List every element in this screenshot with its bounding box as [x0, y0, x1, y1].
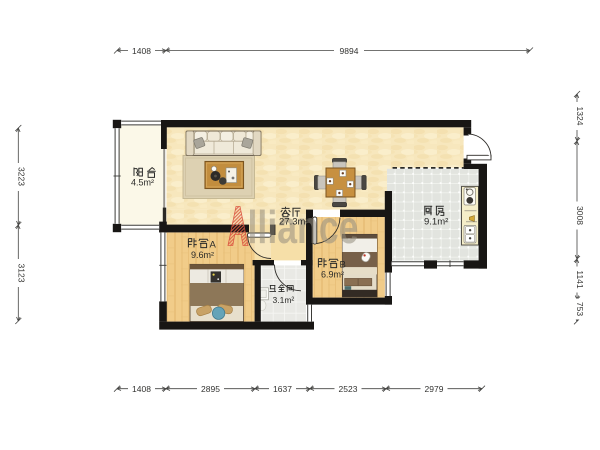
svg-text:6.9m²: 6.9m²	[321, 270, 344, 280]
svg-text:4.5m²: 4.5m²	[131, 177, 154, 187]
svg-text:753: 753	[575, 302, 585, 316]
svg-text:A: A	[210, 240, 217, 251]
svg-text:9.6m²: 9.6m²	[191, 250, 214, 260]
svg-text:1141: 1141	[575, 270, 585, 289]
svg-text:27.3m²: 27.3m²	[279, 217, 309, 228]
svg-text:2979: 2979	[425, 384, 444, 394]
svg-text:9894: 9894	[340, 46, 359, 56]
svg-text:1408: 1408	[132, 46, 151, 56]
svg-text:3223: 3223	[16, 167, 26, 186]
svg-text:2523: 2523	[339, 384, 358, 394]
svg-text:2895: 2895	[201, 384, 220, 394]
svg-text:3.1m²: 3.1m²	[273, 295, 295, 305]
svg-text:9.1m²: 9.1m²	[424, 217, 448, 228]
svg-text:1324: 1324	[575, 107, 585, 126]
svg-text:1637: 1637	[273, 384, 292, 394]
svg-text:1408: 1408	[132, 384, 151, 394]
svg-text:3123: 3123	[16, 264, 26, 283]
svg-text:3008: 3008	[575, 206, 585, 225]
